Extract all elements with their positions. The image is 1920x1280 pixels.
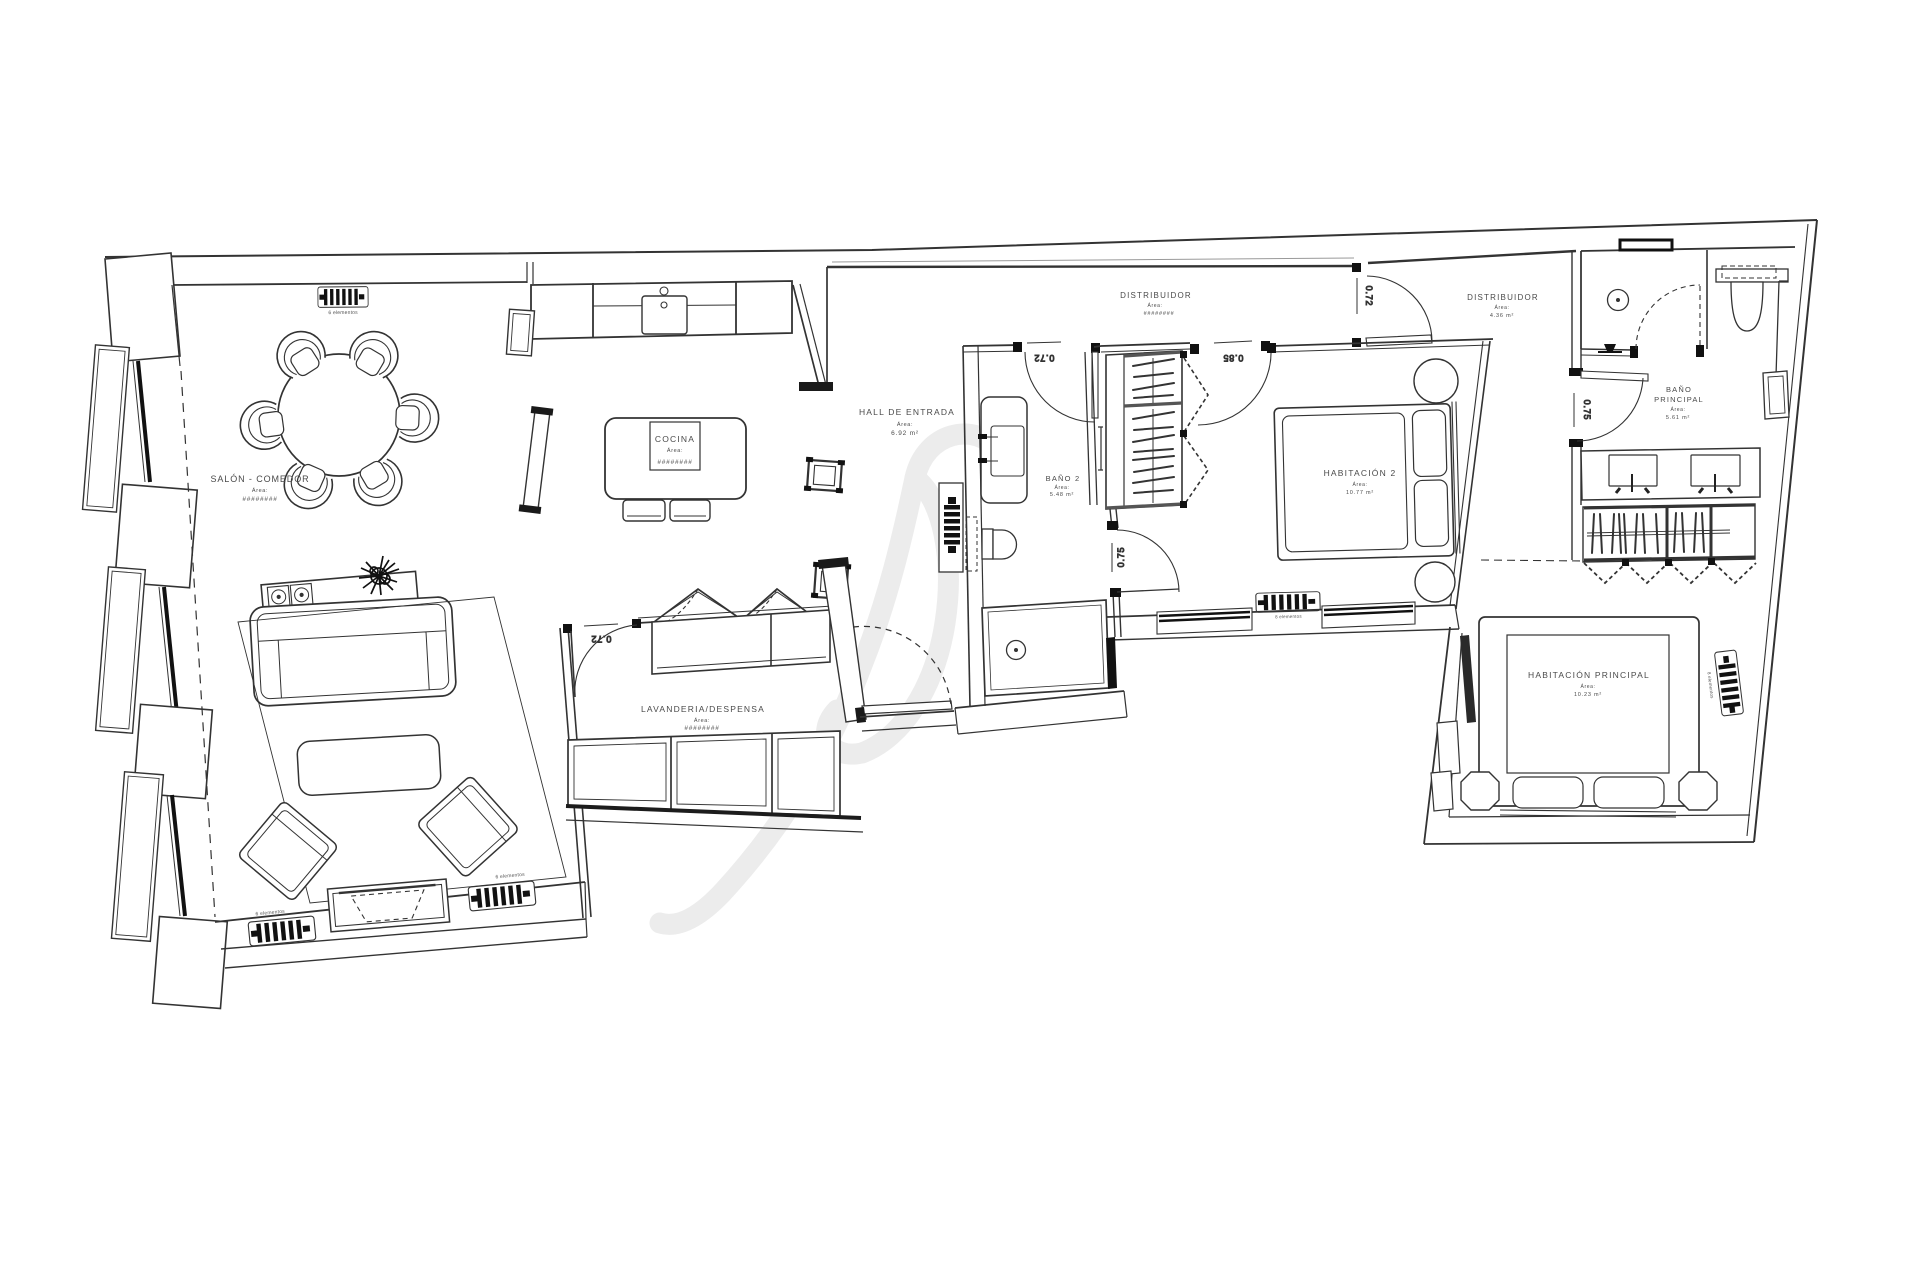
svg-text:4.36 m²: 4.36 m² xyxy=(1490,313,1514,319)
svg-text:Área:: Área: xyxy=(1495,304,1510,311)
svg-text:10.77 m²: 10.77 m² xyxy=(1346,490,1374,496)
svg-text:########: ######## xyxy=(1144,311,1175,317)
svg-text:5.61 m²: 5.61 m² xyxy=(1666,415,1690,421)
svg-text:########: ######## xyxy=(684,725,719,732)
svg-text:Área:: Área: xyxy=(694,717,710,724)
svg-text:COCINA: COCINA xyxy=(655,434,695,444)
svg-text:SALÓN - COMEDOR: SALÓN - COMEDOR xyxy=(210,474,309,484)
svg-text:HABITACIÓN PRINCIPAL: HABITACIÓN PRINCIPAL xyxy=(1528,670,1650,680)
svg-text:0.72: 0.72 xyxy=(1364,286,1374,307)
svg-text:5.48 m²: 5.48 m² xyxy=(1050,492,1074,498)
svg-text:6 elementos: 6 elementos xyxy=(328,310,358,316)
svg-text:LAVANDERIA/DESPENSA: LAVANDERIA/DESPENSA xyxy=(641,704,765,714)
svg-text:Área:: Área: xyxy=(1671,406,1686,413)
svg-text:Área:: Área: xyxy=(1148,302,1163,309)
svg-text:PRINCIPAL: PRINCIPAL xyxy=(1654,395,1704,404)
svg-text:8 elementos: 8 elementos xyxy=(1275,614,1302,620)
svg-text:DISTRIBUIDOR: DISTRIBUIDOR xyxy=(1467,293,1539,302)
svg-text:########: ######## xyxy=(657,459,692,466)
svg-text:HALL DE ENTRADA: HALL DE ENTRADA xyxy=(859,407,955,417)
svg-text:0.85: 0.85 xyxy=(1223,353,1244,363)
svg-text:DISTRIBUIDOR: DISTRIBUIDOR xyxy=(1120,291,1192,300)
svg-text:0.72: 0.72 xyxy=(1034,353,1055,363)
svg-text:0.72: 0.72 xyxy=(591,634,612,644)
svg-text:Área:: Área: xyxy=(897,421,913,428)
svg-text:0.75: 0.75 xyxy=(1582,400,1592,421)
svg-text:########: ######## xyxy=(242,496,277,503)
svg-text:Área:: Área: xyxy=(667,447,683,454)
svg-text:0.75: 0.75 xyxy=(1116,547,1126,568)
svg-text:BAÑO 2: BAÑO 2 xyxy=(1046,474,1081,483)
svg-text:BAÑO: BAÑO xyxy=(1666,385,1692,394)
svg-text:Área:: Área: xyxy=(1581,683,1596,690)
svg-text:HABITACIÓN 2: HABITACIÓN 2 xyxy=(1324,468,1397,478)
svg-text:10.23 m²: 10.23 m² xyxy=(1574,692,1602,698)
svg-text:Área:: Área: xyxy=(1353,481,1368,488)
svg-text:Área:: Área: xyxy=(1055,484,1070,491)
svg-text:Área:: Área: xyxy=(252,487,268,494)
svg-text:6.92 m²: 6.92 m² xyxy=(891,430,919,437)
